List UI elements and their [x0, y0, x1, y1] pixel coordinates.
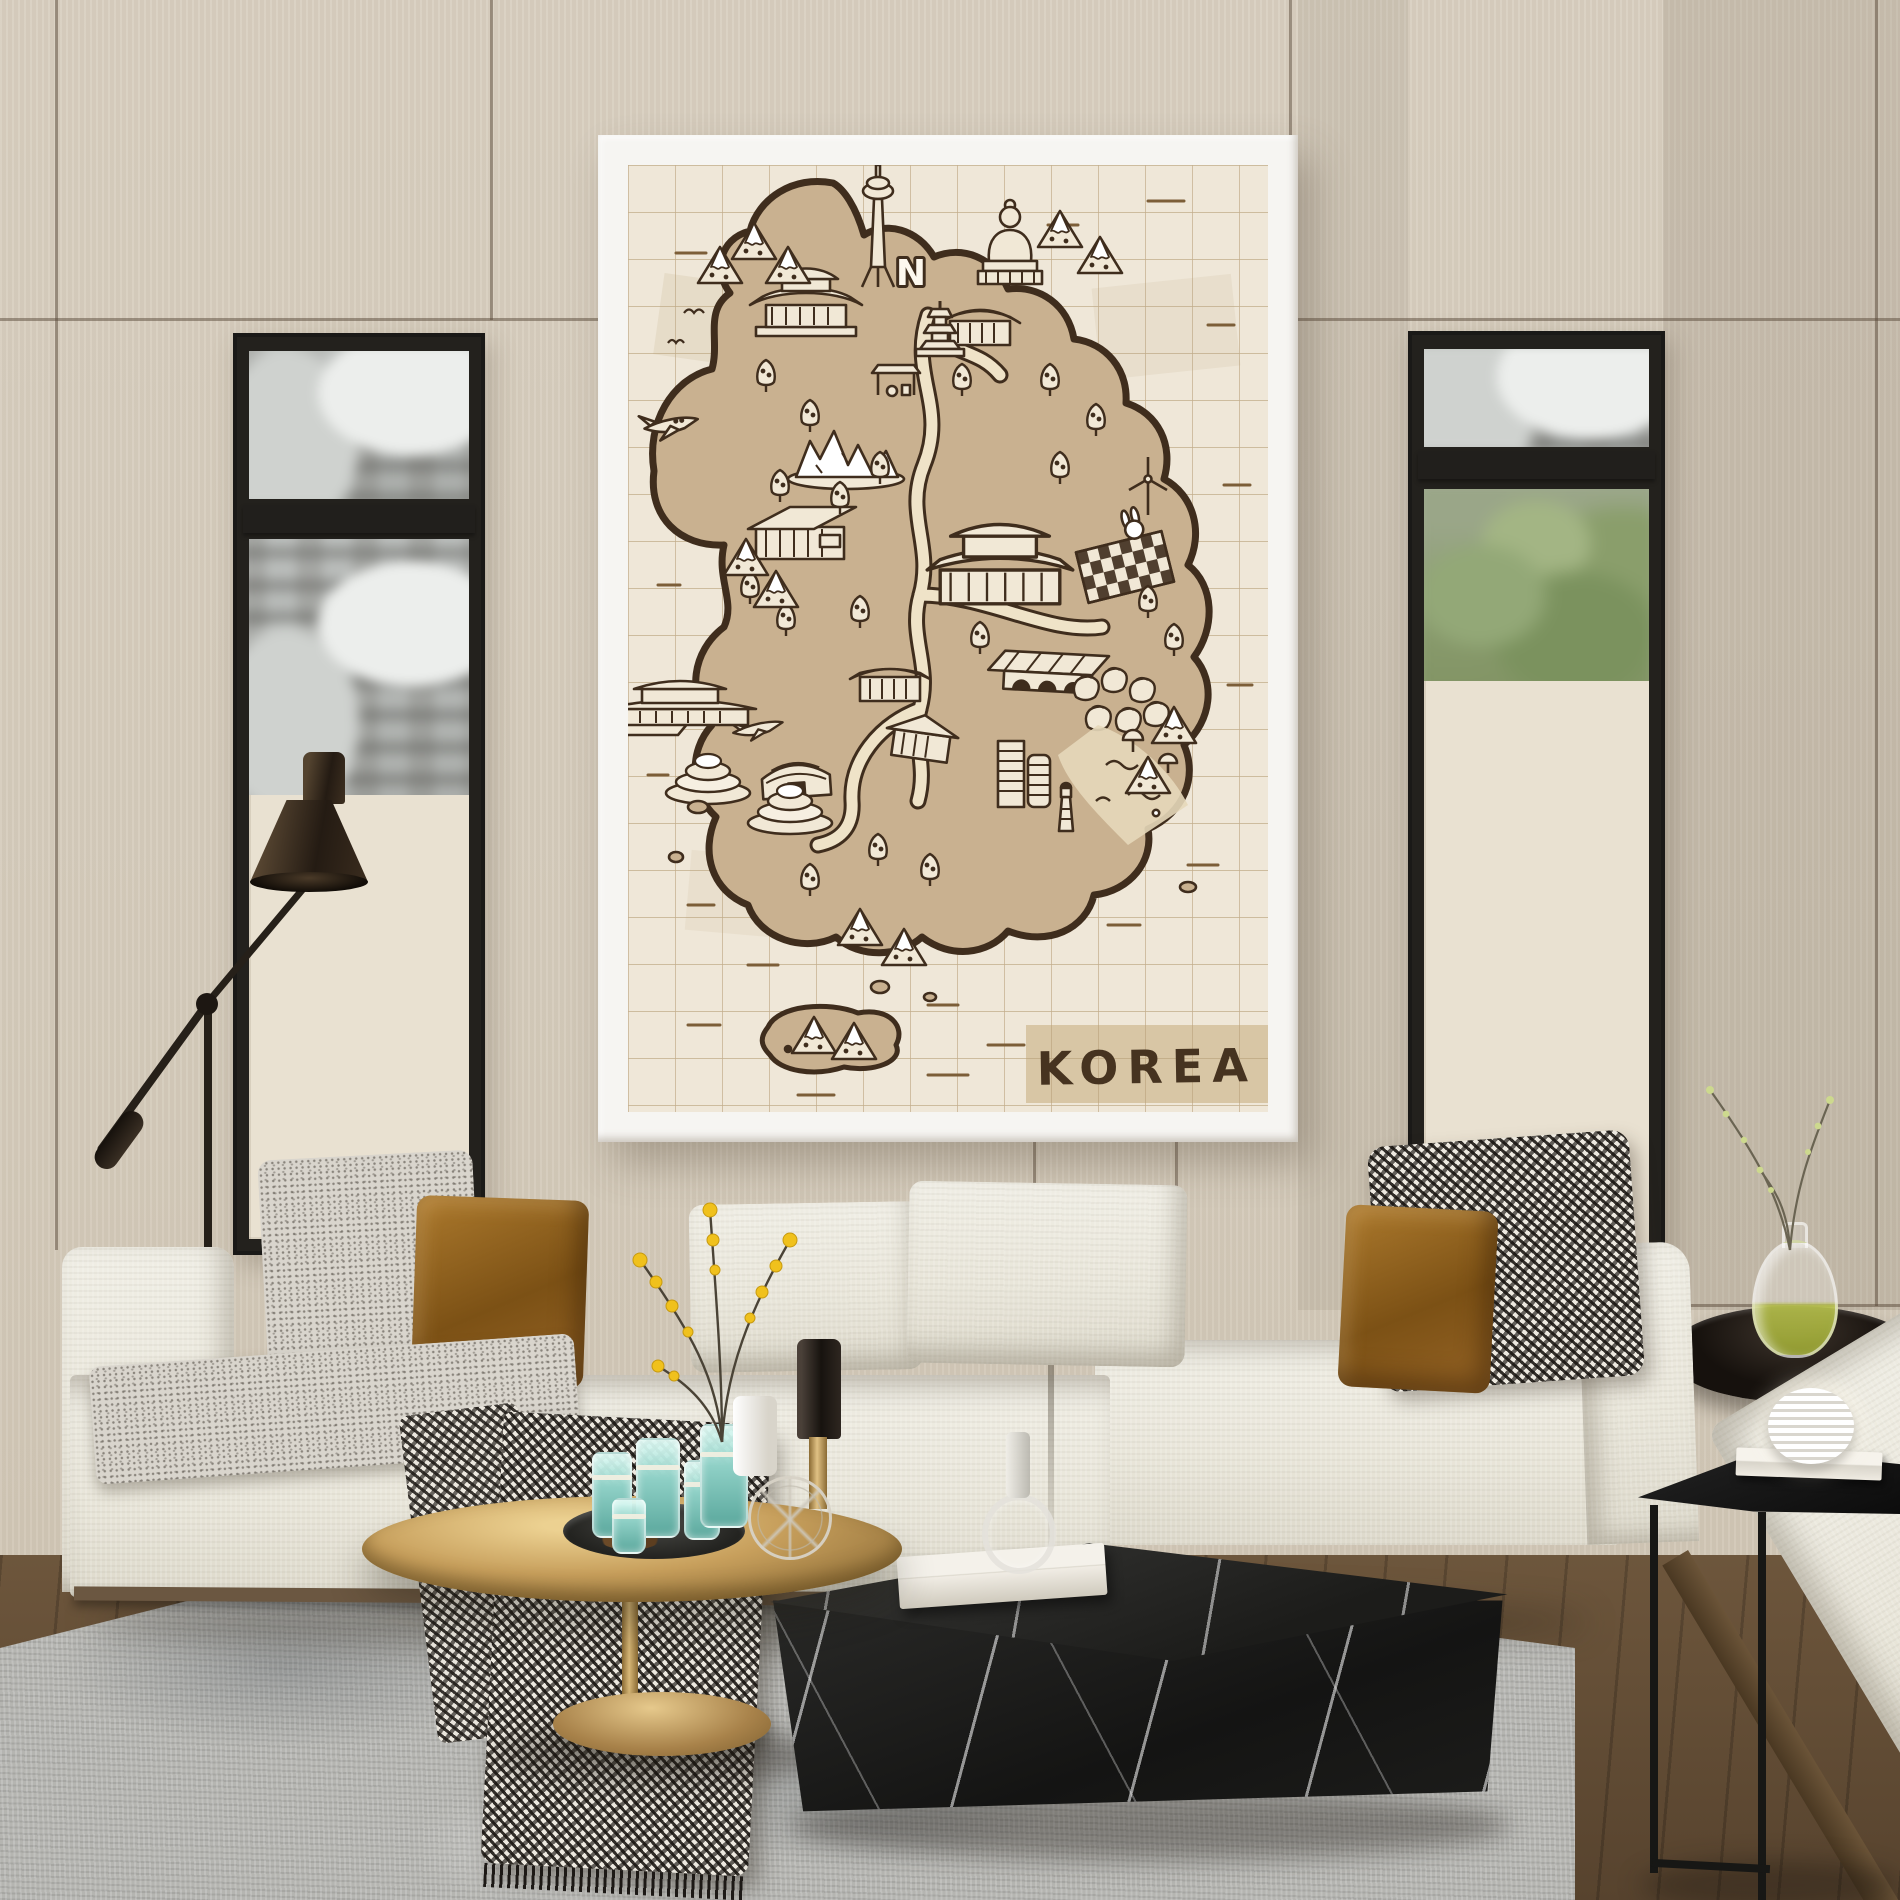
brown-velvet-pillow	[1337, 1204, 1498, 1394]
floor-lamp-pole	[204, 1000, 212, 1252]
teal-glass-jar	[612, 1498, 646, 1554]
white-linen-pillow	[906, 1181, 1187, 1368]
wall-panel-shade	[1298, 0, 1408, 1310]
jeju-island	[762, 1006, 899, 1072]
side-table-leg	[1650, 1505, 1658, 1873]
brick-view	[249, 351, 469, 499]
right-window-transom	[1424, 349, 1649, 447]
living-room-scene: N	[0, 0, 1900, 1900]
lighthouse	[1059, 783, 1073, 831]
brass-table-stem	[622, 1596, 638, 1708]
glass-ring-finial	[1006, 1432, 1030, 1498]
left-window-transom	[249, 351, 469, 499]
brick-view	[1424, 349, 1649, 447]
glass-ring-ornament	[980, 1432, 1060, 1578]
glass-ring	[982, 1494, 1056, 1574]
wall-seam	[490, 0, 493, 320]
window-crossbar	[1418, 451, 1655, 479]
sphere-table-lamp	[1768, 1388, 1854, 1464]
korea-map-svg: N	[628, 165, 1268, 1112]
korea-map-poster-frame: N	[598, 135, 1298, 1142]
floor-lamp-joint	[196, 993, 218, 1015]
white-ceramic-vessel	[733, 1396, 777, 1476]
wall-seam	[1289, 0, 1292, 136]
korea-map-artwork: N	[628, 165, 1268, 1112]
left-window	[233, 333, 485, 1255]
map-compass-n: N	[896, 253, 926, 294]
vase-branches	[1640, 1040, 1860, 1260]
window-crossbar	[243, 505, 475, 533]
floor-lamp-shade-neck	[303, 752, 345, 804]
floor-lamp-shade-rim	[250, 872, 368, 892]
map-title: KOREA	[1036, 1038, 1257, 1096]
side-table-leg	[1758, 1512, 1766, 1900]
wall-seam	[55, 0, 58, 1250]
black-candle-holder	[797, 1339, 841, 1439]
brass-table-foot	[553, 1692, 771, 1756]
wall-seam	[1875, 0, 1878, 1306]
wire-sphere-ornament	[748, 1476, 832, 1560]
wall-seam	[1298, 318, 1900, 321]
wall-seam	[0, 318, 598, 321]
